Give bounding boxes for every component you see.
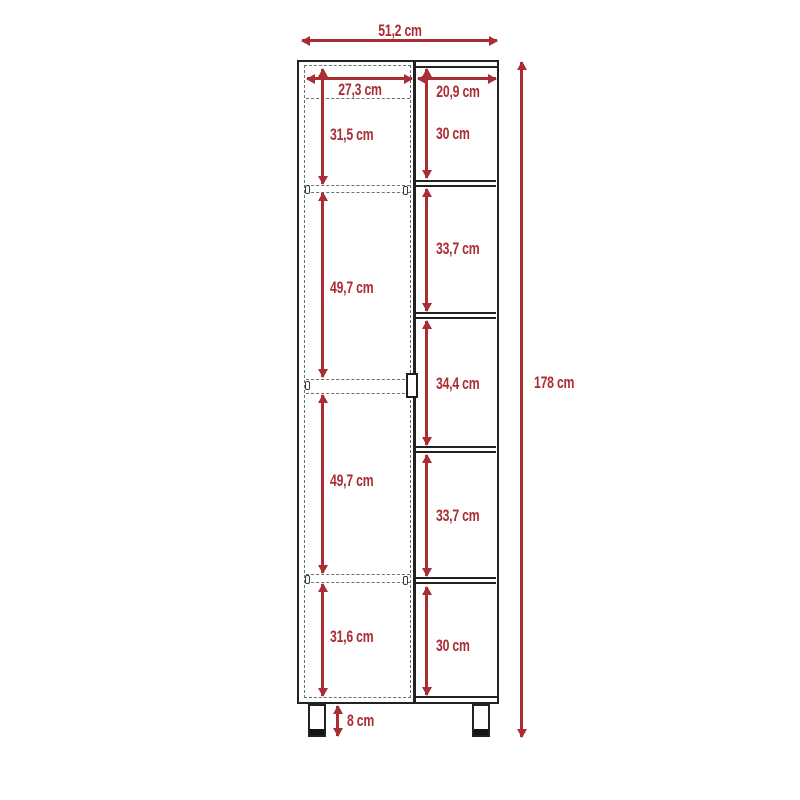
dim-label-leg-height: 8 cm bbox=[347, 711, 374, 731]
dim-arrow-right-column-width bbox=[418, 77, 496, 80]
dim-arrow-right-section-4 bbox=[425, 455, 428, 576]
left-foot bbox=[308, 704, 326, 737]
door-gap-line-1a bbox=[306, 185, 410, 186]
dim-label-right-section-5: 30 cm bbox=[436, 636, 470, 656]
dim-label-right-column-width: 20,9 cm bbox=[422, 82, 494, 102]
foot-cap bbox=[474, 729, 488, 735]
shelf-line-3 bbox=[416, 446, 496, 453]
dim-arrow-total-height bbox=[520, 62, 523, 737]
dim-arrow-right-section-3 bbox=[425, 321, 428, 445]
dim-arrow-left-section-3 bbox=[321, 395, 324, 573]
foot-cap bbox=[310, 729, 324, 735]
hinge-mark-icon bbox=[403, 186, 408, 195]
dim-label-left-section-3: 49,7 cm bbox=[330, 471, 373, 491]
cabinet-dimension-diagram: 51,2 cm 27,3 cm 20,9 cm 31,5 cm 49,7 cm … bbox=[0, 0, 800, 800]
right-column-bottom-panel-line bbox=[416, 696, 497, 698]
dim-label-right-section-1: 30 cm bbox=[436, 124, 470, 144]
dim-label-total-width: 51,2 cm bbox=[357, 21, 443, 41]
dim-arrow-leg-height bbox=[336, 706, 339, 736]
hinge-mark-icon bbox=[305, 185, 310, 194]
dim-label-left-section-2: 49,7 cm bbox=[330, 278, 373, 298]
dim-label-total-height: 178 cm bbox=[534, 373, 574, 393]
dim-arrow-right-section-2 bbox=[425, 189, 428, 311]
dim-label-right-section-3: 34,4 cm bbox=[436, 374, 479, 394]
dim-label-left-section-1: 31,5 cm bbox=[330, 125, 373, 145]
dim-label-left-column-width: 27,3 cm bbox=[324, 80, 396, 100]
hinge-mark-icon bbox=[403, 576, 408, 585]
door-handle bbox=[406, 373, 418, 398]
dim-label-right-section-4: 33,7 cm bbox=[436, 506, 479, 526]
dim-arrow-right-section-5 bbox=[425, 587, 428, 695]
hinge-mark-icon bbox=[305, 381, 310, 390]
right-foot bbox=[472, 704, 490, 737]
door-gap-line-3a bbox=[306, 574, 410, 575]
shelf-line-4 bbox=[416, 577, 496, 584]
dim-arrow-left-section-4 bbox=[321, 584, 324, 696]
hinge-mark-icon bbox=[305, 575, 310, 584]
shelf-line-1 bbox=[416, 180, 496, 187]
dim-label-left-section-4: 31,6 cm bbox=[330, 627, 373, 647]
door-gap-line-2a bbox=[306, 379, 410, 380]
dim-label-right-section-2: 33,7 cm bbox=[436, 239, 479, 259]
shelf-line-2 bbox=[416, 312, 496, 319]
dim-arrow-left-section-2 bbox=[321, 193, 324, 377]
